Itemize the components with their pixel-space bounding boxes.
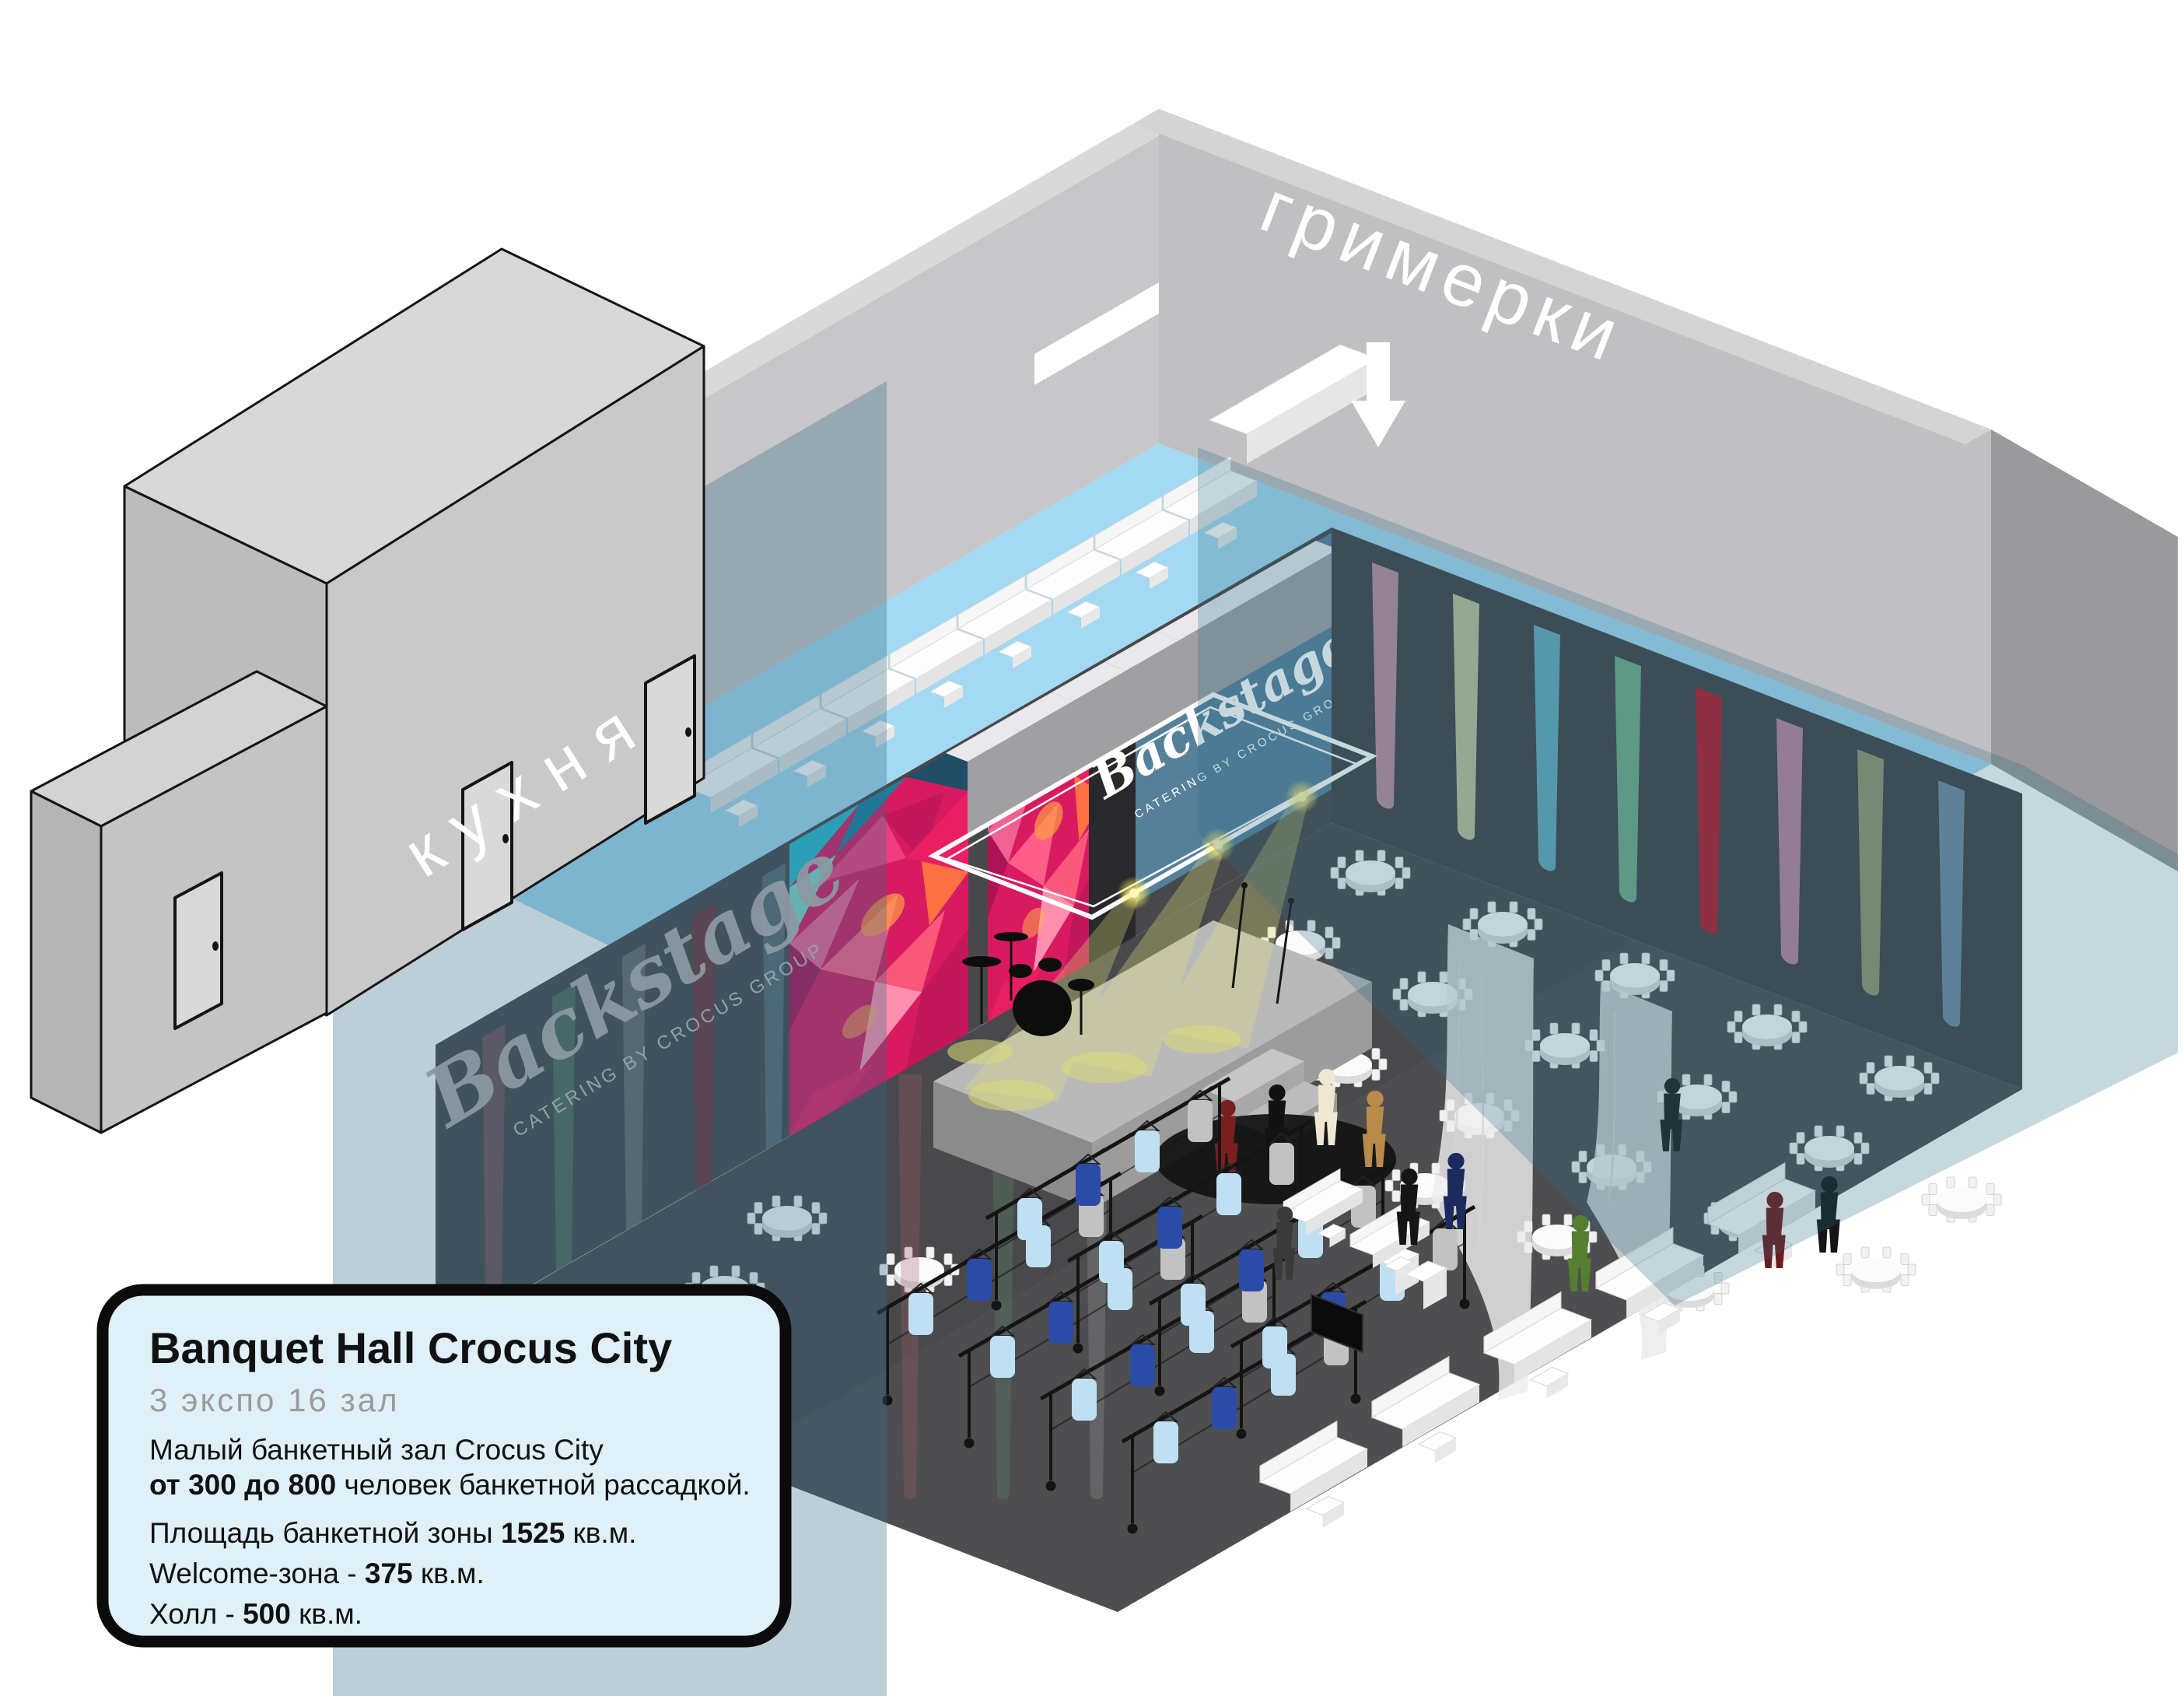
info-line2: Площадь банкетной зоны 1525 кв.м.	[149, 1517, 636, 1549]
info-line3: Welcome-зона - 375 кв.м.	[149, 1558, 485, 1589]
kitchen-annex-left	[31, 791, 101, 1133]
info-line1a: Малый банкетный зал Crocus City	[149, 1434, 604, 1466]
info-box: Banquet Hall Crocus City 3 экспо 16 зал …	[103, 1290, 786, 1642]
banquet-table	[1922, 1177, 2001, 1222]
info-subtitle: 3 экспо 16 зал	[149, 1382, 400, 1418]
info-title: Banquet Hall Crocus City	[149, 1323, 672, 1372]
banquet-table	[1836, 1247, 1916, 1292]
info-line1b: от 300 до 800 человек банкетной рассадко…	[149, 1469, 751, 1501]
venue-floorplan: гримерки Backstage CATERING BY CROCUS GR…	[0, 0, 2184, 1696]
info-line4: Холл - 500 кв.м.	[149, 1598, 362, 1630]
